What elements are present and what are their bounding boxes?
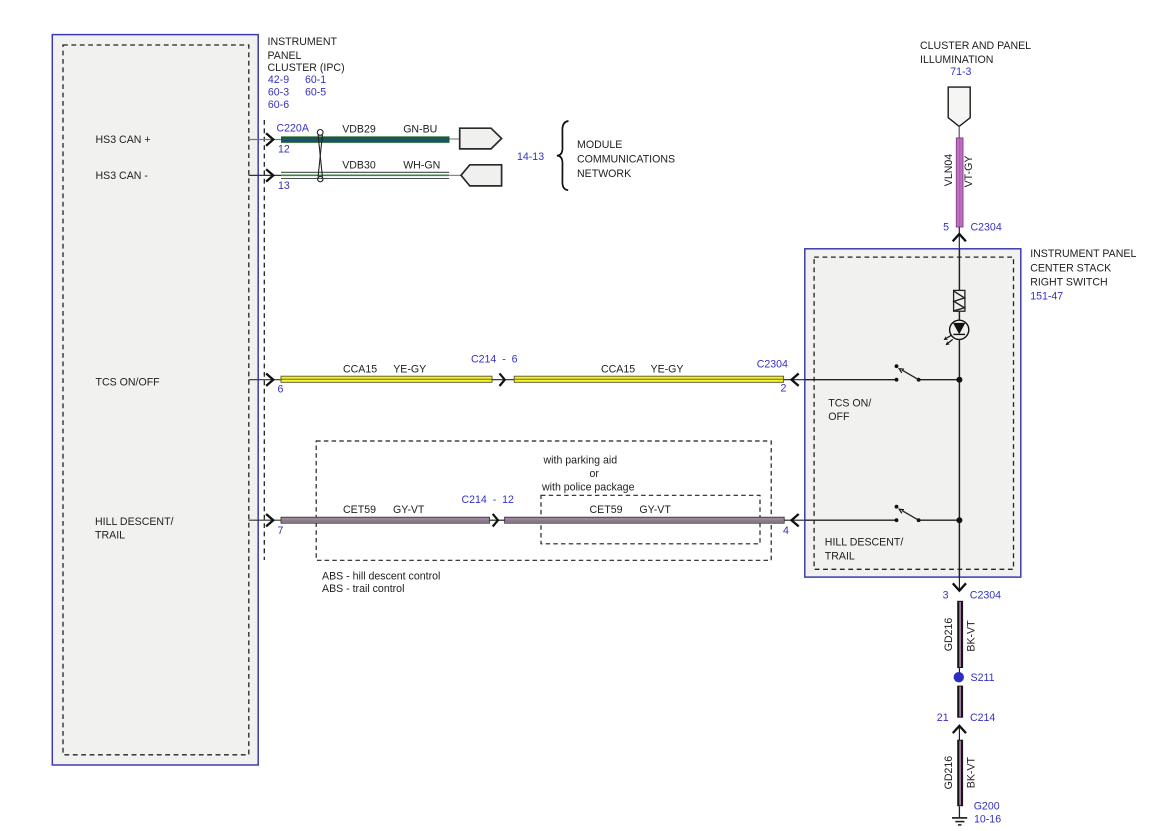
svg-text:C220A: C220A <box>277 123 310 135</box>
svg-text:3: 3 <box>943 590 949 602</box>
svg-text:PANEL: PANEL <box>268 50 302 62</box>
svg-text:VT-GY: VT-GY <box>963 156 975 188</box>
svg-text:with parking aid: with parking aid <box>543 454 618 466</box>
svg-text:CENTER STACK: CENTER STACK <box>1030 262 1111 274</box>
svg-text:21: 21 <box>937 712 949 724</box>
svg-text:60-3: 60-3 <box>268 86 289 98</box>
svg-text:OFF: OFF <box>828 411 850 423</box>
svg-text:YE-GY: YE-GY <box>393 364 426 376</box>
svg-text:GY-VT: GY-VT <box>393 504 425 516</box>
svg-text:60-6: 60-6 <box>268 99 289 111</box>
svg-text:C214 - 12: C214 - 12 <box>462 494 515 506</box>
svg-text:CLUSTER AND PANEL: CLUSTER AND PANEL <box>920 40 1031 52</box>
svg-text:10-16: 10-16 <box>974 814 1001 826</box>
svg-text:C2304: C2304 <box>971 221 1002 233</box>
svg-text:GD216: GD216 <box>943 756 955 790</box>
svg-text:BK-VT: BK-VT <box>966 620 978 652</box>
svg-text:12: 12 <box>278 144 290 156</box>
svg-text:C2304: C2304 <box>970 590 1001 602</box>
svg-text:CCA15: CCA15 <box>343 364 377 376</box>
svg-text:RIGHT SWITCH: RIGHT SWITCH <box>1030 276 1108 288</box>
svg-text:5: 5 <box>943 221 949 233</box>
svg-text:CET59: CET59 <box>343 504 376 516</box>
svg-text:151-47: 151-47 <box>1030 290 1063 302</box>
svg-text:HILL DESCENT/: HILL DESCENT/ <box>825 536 904 548</box>
svg-text:71-3: 71-3 <box>950 66 971 78</box>
svg-text:C214: C214 <box>970 712 995 724</box>
svg-text:GD216: GD216 <box>943 618 955 652</box>
svg-text:GN-BU: GN-BU <box>403 123 437 135</box>
svg-text:INSTRUMENT PANEL: INSTRUMENT PANEL <box>1030 248 1136 260</box>
svg-text:C2304: C2304 <box>757 359 788 371</box>
svg-text:CLUSTER (IPC): CLUSTER (IPC) <box>268 62 345 74</box>
svg-text:TCS ON/: TCS ON/ <box>828 397 871 409</box>
svg-text:MODULE: MODULE <box>577 139 622 151</box>
svg-text:4: 4 <box>783 525 789 537</box>
svg-text:VDB29: VDB29 <box>342 123 376 135</box>
svg-text:S211: S211 <box>971 672 995 684</box>
svg-text:WH-GN: WH-GN <box>403 159 440 171</box>
svg-text:7: 7 <box>278 525 284 537</box>
svg-text:42-9: 42-9 <box>268 74 289 86</box>
svg-text:G200: G200 <box>974 801 1000 813</box>
svg-text:14-13: 14-13 <box>517 151 544 163</box>
svg-text:BK-VT: BK-VT <box>966 756 978 788</box>
svg-text:TRAIL: TRAIL <box>95 530 125 542</box>
svg-text:VDB30: VDB30 <box>342 159 376 171</box>
svg-text:HS3 CAN -: HS3 CAN - <box>96 170 149 182</box>
svg-text:13: 13 <box>278 180 290 192</box>
svg-text:TRAIL: TRAIL <box>825 550 855 562</box>
svg-text:with police package: with police package <box>541 481 635 493</box>
svg-text:ILLUMINATION: ILLUMINATION <box>920 54 993 66</box>
svg-text:HILL DESCENT/: HILL DESCENT/ <box>95 516 174 528</box>
svg-text:60-5: 60-5 <box>305 86 326 98</box>
svg-text:60-1: 60-1 <box>305 74 326 86</box>
svg-text:GY-VT: GY-VT <box>639 504 671 516</box>
svg-text:CCA15: CCA15 <box>601 364 635 376</box>
svg-text:TCS ON/OFF: TCS ON/OFF <box>96 376 161 388</box>
svg-text:COMMUNICATIONS: COMMUNICATIONS <box>577 154 675 166</box>
svg-text:or: or <box>590 468 600 480</box>
svg-text:ABS - trail control: ABS - trail control <box>322 583 404 595</box>
svg-text:ABS - hill descent control: ABS - hill descent control <box>322 570 440 582</box>
svg-text:YE-GY: YE-GY <box>651 364 684 376</box>
svg-text:2: 2 <box>781 382 787 394</box>
svg-text:NETWORK: NETWORK <box>577 168 631 180</box>
svg-text:VLN04: VLN04 <box>943 154 955 186</box>
svg-text:INSTRUMENT: INSTRUMENT <box>268 36 338 48</box>
svg-text:6: 6 <box>278 384 284 396</box>
svg-text:C214 - 6: C214 - 6 <box>471 354 518 366</box>
svg-text:CET59: CET59 <box>590 504 623 516</box>
svg-text:HS3 CAN +: HS3 CAN + <box>96 134 151 146</box>
